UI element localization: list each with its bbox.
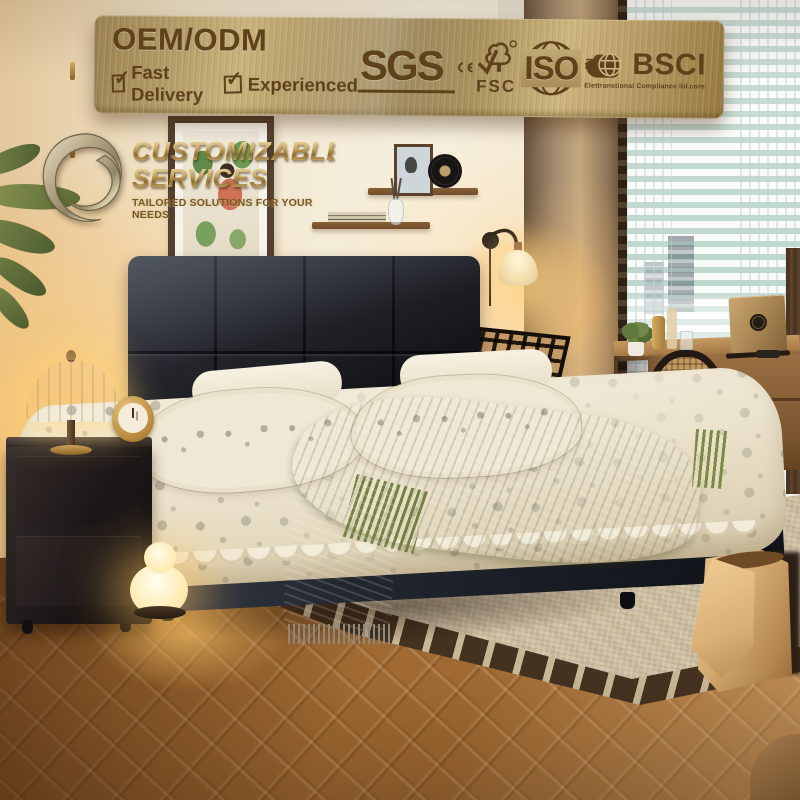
banner-left-block: OEM/ODM ✓ Fast Delivery ✓ Experienced [112,24,359,108]
bsci-tagline: Elettranstional Compliance lld.core [584,83,705,91]
gourd-floor-lamp-top [144,542,176,573]
bsci-label: BSCI [632,48,706,83]
desk-plant-pot [628,342,644,356]
laptop-logo-icon [749,314,767,332]
check-glyph: ✓ [113,65,130,90]
oem-odm-title: OEM/ODM [112,24,358,59]
glass-cup [680,331,693,350]
nightstand-foot [22,620,33,634]
iso-logo: ISO [518,34,585,103]
experienced-item: ✓ Experienced [224,73,358,96]
nightstand-drawer [16,456,142,526]
amber-jar [652,316,665,349]
metal-swirl-icon [28,126,146,234]
throw-fringe [692,429,728,489]
bed-foot [620,592,635,609]
logo-tagline: TAILORED SOLUTIONS FOR YOUR NEEDS [132,197,334,221]
fsc-tree-icon [474,39,518,79]
fsc-logo: FSC [474,39,519,97]
logo-line-2: SERVICES [132,165,334,192]
table-lamp-base [50,445,92,455]
sgs-logo: SGS [358,45,455,94]
tall-bottle [667,308,677,349]
bsci-logo: BSCI Elettranstional Compliance lld.core [584,48,706,91]
logo-text-block: CUSTOMIZABLE SERVICES TAILORED SOLUTIONS… [132,138,334,221]
customizable-services-badge: CUSTOMIZABLE SERVICES TAILORED SOLUTIONS… [28,124,334,238]
check-glyph: ✓ [225,66,242,91]
bsci-hand-globe-icon [584,48,628,82]
bedroom-product-photo: OEM/ODM ✓ Fast Delivery ✓ Experienced SG… [0,0,800,800]
certification-banner: OEM/ODM ✓ Fast Delivery ✓ Experienced SG… [94,15,725,118]
glass-vase [388,198,404,225]
nightstand-foot [120,618,131,632]
fast-delivery-item: ✓ Fast Delivery [112,61,208,106]
experienced-label: Experienced [248,73,358,96]
nightstand-drawer [16,536,142,606]
iso-label: ISO [521,49,581,88]
checkbox-icon: ✓ [112,74,126,92]
banner-checklist: ✓ Fast Delivery ✓ Experienced [112,61,358,107]
logo-line-1: CUSTOMIZABLE [132,138,334,165]
table-lamp-stem [67,420,75,448]
bsci-row: BSCI [584,48,706,83]
checkbox-icon: ✓ [224,75,242,93]
laptop [728,295,787,358]
fast-delivery-label: Fast Delivery [131,61,208,106]
drawer-handle [70,62,75,80]
alarm-clock [112,396,154,442]
grey-fringed-blanket [283,466,397,632]
blanket-fringe [288,624,392,644]
desk-phone [756,350,780,358]
desk-plant [620,322,654,344]
fsc-label: FSC [476,77,516,97]
photo-portrait [405,157,417,173]
ce-mark-icon [455,48,475,86]
vinyl-record [428,154,462,188]
clock-hands [132,408,134,418]
shelf-books [328,212,386,222]
gourd-floor-lamp-base [134,606,186,619]
